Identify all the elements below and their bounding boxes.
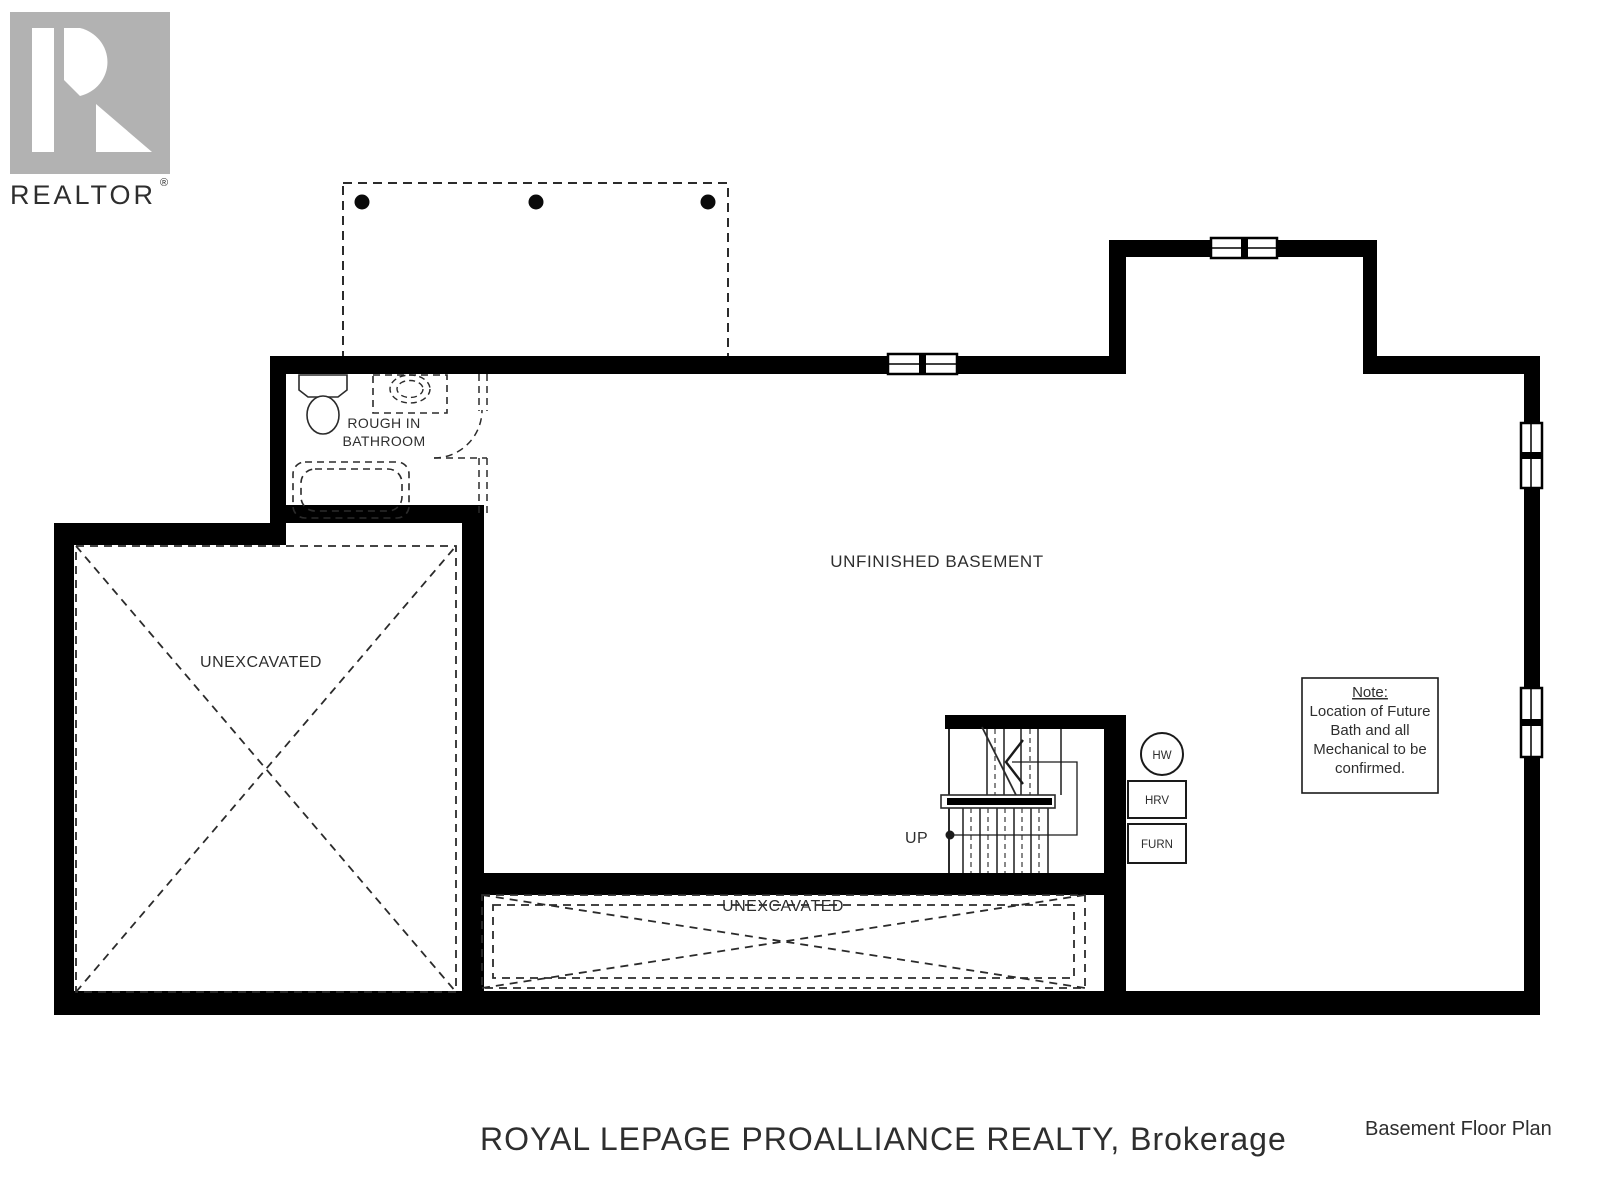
unexcavated-bottom-label: UNEXCAVATED bbox=[722, 898, 844, 915]
deck-post-dot bbox=[355, 195, 370, 210]
wall-leftblock-right bbox=[462, 505, 484, 1015]
wall-strip-top bbox=[462, 873, 1126, 895]
hot-water-tank-icon: HW bbox=[1141, 733, 1183, 775]
stair-lower-dashed bbox=[971, 808, 1039, 873]
page-title: Basement Floor Plan bbox=[1365, 1118, 1552, 1140]
deck-post-dot bbox=[529, 195, 544, 210]
unexcavated-left-label: UNEXCAVATED bbox=[200, 654, 322, 671]
stairs: UP bbox=[905, 727, 1077, 873]
wall-bottom-right bbox=[1104, 991, 1540, 1015]
wall-bathroom-bottom bbox=[270, 505, 482, 523]
deck-post-dot bbox=[701, 195, 716, 210]
furnace-label: FURN bbox=[1141, 839, 1173, 851]
note-line: Mechanical to be bbox=[1313, 741, 1426, 758]
bathroom-label-line1: ROUGH IN bbox=[347, 415, 420, 431]
up-leader-dot bbox=[946, 831, 955, 840]
realtor-logo-label: REALTOR bbox=[10, 180, 156, 210]
furnace-unit-icon: FURN bbox=[1128, 824, 1186, 863]
note-title: Note: bbox=[1352, 684, 1388, 701]
wall-strip-bottom bbox=[462, 991, 1126, 1015]
wall-bump-right bbox=[1363, 240, 1377, 374]
wall-bump-left bbox=[1109, 240, 1126, 374]
note-line: confirmed. bbox=[1335, 760, 1405, 777]
wall-stair-top bbox=[945, 715, 1126, 729]
wall-bathroom-left bbox=[270, 356, 286, 523]
hrv-unit-icon: HRV bbox=[1128, 781, 1186, 818]
note-line: Location of Future bbox=[1310, 703, 1431, 720]
wall-bottom-left bbox=[54, 991, 484, 1015]
up-label: UP bbox=[905, 830, 928, 847]
wall-leftblock-top bbox=[54, 523, 286, 545]
brokerage-watermark: ROYAL LEPAGE PROALLIANCE REALTY, Brokera… bbox=[480, 1121, 1287, 1157]
floor-plan-drawing: REALTOR ® bbox=[0, 0, 1598, 1200]
sink-icon bbox=[373, 375, 447, 413]
window-right-lower-icon bbox=[1521, 688, 1542, 757]
floor-plan-page: REALTOR ® bbox=[0, 0, 1598, 1200]
wall-stair-right bbox=[1104, 715, 1126, 895]
realtor-logo: REALTOR ® bbox=[10, 12, 170, 210]
basement-label: UNFINISHED BASEMENT bbox=[830, 552, 1044, 571]
wall-leftblock-left bbox=[54, 523, 74, 1015]
door-swing-icon bbox=[434, 374, 487, 518]
unexcavated-left-area bbox=[76, 546, 456, 992]
toilet-icon bbox=[299, 375, 347, 434]
window-right-upper-icon bbox=[1521, 423, 1542, 488]
bathroom-label-line2: BATHROOM bbox=[342, 433, 425, 449]
wall-topright-horizontal bbox=[1363, 356, 1540, 374]
stair-landing bbox=[941, 795, 1055, 808]
hrv-label: HRV bbox=[1145, 795, 1169, 807]
hw-label: HW bbox=[1152, 750, 1171, 762]
note-box: Note: Location of Future Bath and all Me… bbox=[1302, 678, 1438, 793]
window-top-icon bbox=[888, 354, 957, 374]
window-bump-icon bbox=[1211, 238, 1277, 258]
note-line: Bath and all bbox=[1330, 722, 1409, 739]
wall-top-main bbox=[270, 356, 1126, 374]
windows bbox=[888, 238, 1542, 757]
registered-mark: ® bbox=[160, 177, 168, 189]
deck-post-dots bbox=[355, 195, 716, 210]
mechanical-equipment: HW HRV FURN bbox=[1128, 733, 1186, 863]
